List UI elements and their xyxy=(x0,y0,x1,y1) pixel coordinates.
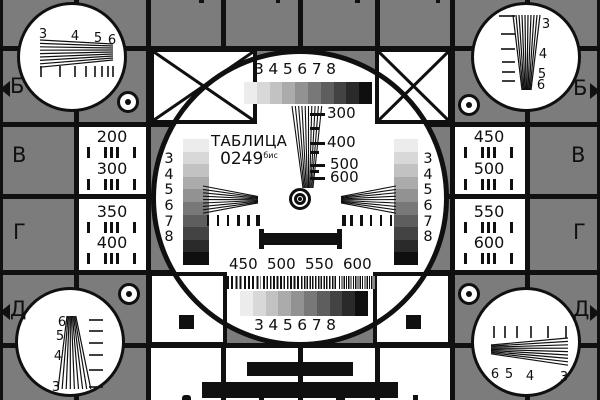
resolution-wedge-center-right xyxy=(341,186,397,214)
grayscale-step xyxy=(270,82,283,104)
corner-digit: 4 xyxy=(539,47,547,62)
burst-label-550: 550 xyxy=(305,257,331,272)
cropped-glyph xyxy=(199,0,204,3)
digit: 7 xyxy=(312,318,322,334)
side-box-left xyxy=(148,272,227,346)
freq-label-400: 400 xyxy=(327,135,356,150)
tick xyxy=(207,215,209,226)
burst-label-600: 600 xyxy=(343,257,369,272)
frequency-burst-strip xyxy=(227,276,375,289)
black-square-right xyxy=(406,315,421,329)
freq-tick-group xyxy=(87,222,137,233)
x-diagonals-icon xyxy=(379,52,448,120)
card-number: 0249бис xyxy=(211,151,287,168)
corner-digit: 3 xyxy=(542,17,550,32)
corner-circle-top-right: 3 4 5 6 xyxy=(471,2,581,112)
grayscale-top xyxy=(244,82,372,104)
digit: 7 xyxy=(312,62,322,78)
freq-tick xyxy=(310,113,325,116)
corner-digit: 4 xyxy=(71,29,79,44)
burst-segment xyxy=(227,276,261,289)
x-diagonals-icon xyxy=(154,52,253,120)
grayscale-step xyxy=(321,82,334,104)
digit: 6 xyxy=(423,199,432,214)
tick xyxy=(237,215,240,226)
grayscale-bottom xyxy=(240,291,368,316)
digit: 8 xyxy=(423,230,432,245)
digit: 5 xyxy=(164,183,173,198)
grayscale-step xyxy=(257,82,270,104)
right-scale-digits: 345678 xyxy=(420,152,436,245)
grayscale-step xyxy=(334,82,347,104)
digit: 3 xyxy=(254,318,264,334)
freq-tick-group xyxy=(87,179,137,190)
grayscale-step xyxy=(355,291,368,316)
corner-digit: 6 xyxy=(537,78,545,93)
grayscale-step xyxy=(346,82,359,104)
corner-digit: 3 xyxy=(560,370,568,385)
right-col-600: 600 xyxy=(453,235,525,251)
ibeam-cap-right xyxy=(337,229,342,249)
row-pointer-icon xyxy=(0,304,10,320)
digit: 4 xyxy=(268,318,278,334)
digit: 5 xyxy=(423,183,432,198)
freq-tick xyxy=(310,142,325,145)
right-col-450: 450 xyxy=(453,129,525,145)
grayscale-step xyxy=(183,215,209,228)
tick xyxy=(360,215,363,226)
corner-wedge-bottom-left: 6 5 4 3 xyxy=(18,290,122,394)
left-col-300: 300 xyxy=(76,161,148,177)
target-dot xyxy=(126,291,132,297)
freq-tick xyxy=(310,164,325,167)
top-resolution-digits: 345678 xyxy=(254,62,336,78)
diagonal-cross-box-left xyxy=(150,48,257,124)
registration-target xyxy=(458,94,480,116)
grid-line xyxy=(0,0,3,400)
left-col-400: 400 xyxy=(76,235,148,251)
corner-digit: 3 xyxy=(52,380,60,395)
digit: 3 xyxy=(164,152,173,167)
tick xyxy=(342,215,346,226)
corner-digit: 5 xyxy=(56,329,64,344)
grayscale-step xyxy=(394,215,418,228)
grayscale-step xyxy=(295,82,308,104)
grayscale-step xyxy=(308,82,321,104)
corner-wedge-bottom-right: 6 5 4 3 xyxy=(474,290,578,394)
card-number-suffix: бис xyxy=(263,151,278,160)
target-dot xyxy=(125,99,131,105)
grayscale-step xyxy=(330,291,343,316)
tick xyxy=(227,215,229,226)
freq-tick xyxy=(310,177,325,180)
freq-tick-group xyxy=(464,147,514,158)
grayscale-step xyxy=(183,252,209,265)
tick xyxy=(247,215,250,226)
burst-segment xyxy=(301,276,337,289)
grayscale-step xyxy=(394,252,418,265)
digit: 5 xyxy=(283,318,293,334)
corner-circle-bottom-right: 6 5 4 3 xyxy=(471,287,581,397)
corner-circle-top-left: 3 4 5 6 xyxy=(17,2,127,112)
freq-tick-group xyxy=(87,147,137,158)
corner-wedge-top-right: 3 4 5 6 xyxy=(474,5,578,109)
freq-tick xyxy=(310,127,319,130)
row-label-d-right: Д xyxy=(573,299,589,320)
freq-tick-group xyxy=(464,222,514,233)
row-label-v-right: В xyxy=(571,145,585,166)
grayscale-step xyxy=(394,189,418,202)
cropped-glyph xyxy=(413,395,418,400)
burst-segment xyxy=(263,276,299,289)
grayscale-step xyxy=(359,82,372,104)
grayscale-step xyxy=(291,291,304,316)
grayscale-step xyxy=(394,152,418,165)
digit: 7 xyxy=(164,215,173,230)
grayscale-step xyxy=(394,240,418,253)
target-dot xyxy=(466,102,472,108)
freq-tick-group xyxy=(464,179,514,190)
corner-digit: 6 xyxy=(58,315,66,330)
bottom-bar-long xyxy=(202,382,398,398)
burst-label-450: 450 xyxy=(229,257,255,272)
corner-digit: 5 xyxy=(505,367,513,382)
digit: 6 xyxy=(297,62,307,78)
grayscale-step xyxy=(183,227,209,240)
freq-tick-group xyxy=(87,253,137,264)
grayscale-step xyxy=(394,164,418,177)
ibeam-bar xyxy=(261,233,341,245)
freq-label-300: 300 xyxy=(327,106,356,121)
grayscale-step xyxy=(304,291,317,316)
black-square-left xyxy=(179,315,194,329)
registration-target xyxy=(118,283,140,305)
tick xyxy=(380,215,382,226)
grayscale-step xyxy=(278,291,291,316)
grayscale-step xyxy=(317,291,330,316)
burst-label-500: 500 xyxy=(267,257,293,272)
right-col-550: 550 xyxy=(453,204,525,220)
corner-digit: 6 xyxy=(491,367,499,382)
digit: 7 xyxy=(423,215,432,230)
bottom-bar-short xyxy=(247,362,353,376)
digit: 4 xyxy=(164,168,173,183)
grayscale-step xyxy=(394,227,418,240)
digit: 6 xyxy=(164,199,173,214)
grayscale-step xyxy=(342,291,355,316)
grayscale-step xyxy=(394,139,418,152)
registration-target xyxy=(117,91,139,113)
digit: 8 xyxy=(326,62,336,78)
cropped-glyph xyxy=(355,0,360,3)
digit: 4 xyxy=(423,168,432,183)
row-pointer-icon xyxy=(590,83,600,99)
freq-tick-group xyxy=(464,253,514,264)
corner-digit: 3 xyxy=(39,27,47,42)
grayscale-step xyxy=(183,152,209,165)
grayscale-step xyxy=(394,177,418,190)
digit: 8 xyxy=(326,318,336,334)
cropped-glyph xyxy=(182,395,191,400)
card-number-main: 0249 xyxy=(220,149,263,169)
digit: 3 xyxy=(254,62,264,78)
row-label-b-left: Б xyxy=(10,76,24,97)
tick xyxy=(256,215,260,226)
row-label-b-right: Б xyxy=(573,78,587,99)
grayscale-step xyxy=(183,164,209,177)
corner-circle-bottom-left: 6 5 4 3 xyxy=(15,287,125,397)
row-pointer-icon xyxy=(0,81,10,97)
grayscale-step xyxy=(394,202,418,215)
card-title: ТАБЛИЦА xyxy=(211,134,287,149)
digit: 4 xyxy=(268,62,278,78)
bullseye-dot xyxy=(298,197,302,201)
row-label-g-left: Г xyxy=(13,222,26,243)
diagonal-cross-box-right xyxy=(375,48,452,124)
grayscale-step xyxy=(183,240,209,253)
corner-wedge-top-left: 3 4 5 6 xyxy=(20,5,124,109)
left-col-350: 350 xyxy=(76,204,148,220)
grayscale-step xyxy=(240,291,253,316)
registration-target xyxy=(458,283,480,305)
grayscale-right xyxy=(394,139,418,265)
freq-tick xyxy=(310,170,319,173)
digit: 5 xyxy=(283,62,293,78)
corner-digit: 6 xyxy=(108,33,116,48)
left-scale-digits: 345678 xyxy=(161,152,177,245)
row-label-v-left: В xyxy=(12,145,26,166)
tick xyxy=(350,215,353,226)
corner-digit: 4 xyxy=(54,349,62,364)
tv-test-card: 345678 300 400 500 600 ТАБЛИЦА 0249бис 3… xyxy=(0,0,600,400)
digit: 3 xyxy=(423,152,432,167)
cropped-glyph xyxy=(276,0,280,3)
digit: 8 xyxy=(164,230,173,245)
grayscale-step xyxy=(282,82,295,104)
left-col-200: 200 xyxy=(76,129,148,145)
bottom-resolution-digits: 345678 xyxy=(254,318,336,334)
grayscale-step xyxy=(183,139,209,152)
grayscale-step xyxy=(253,291,266,316)
tick xyxy=(370,215,372,226)
freq-tick xyxy=(310,151,319,154)
row-label-g-right: Г xyxy=(573,222,586,243)
right-col-500: 500 xyxy=(453,161,525,177)
grayscale-step xyxy=(266,291,279,316)
side-box-right xyxy=(373,272,452,346)
corner-digit: 5 xyxy=(94,31,102,46)
tick xyxy=(217,215,219,226)
target-dot xyxy=(466,291,472,297)
freq-label-600: 600 xyxy=(330,170,359,185)
burst-segment xyxy=(339,276,375,289)
digit: 6 xyxy=(297,318,307,334)
row-label-d-left: Д xyxy=(10,299,26,320)
corner-digit: 4 xyxy=(526,369,534,384)
cropped-glyph xyxy=(436,0,440,3)
row-pointer-icon xyxy=(590,305,600,321)
tick xyxy=(390,215,392,226)
resolution-wedge-center-left xyxy=(203,186,259,214)
grayscale-step xyxy=(244,82,257,104)
